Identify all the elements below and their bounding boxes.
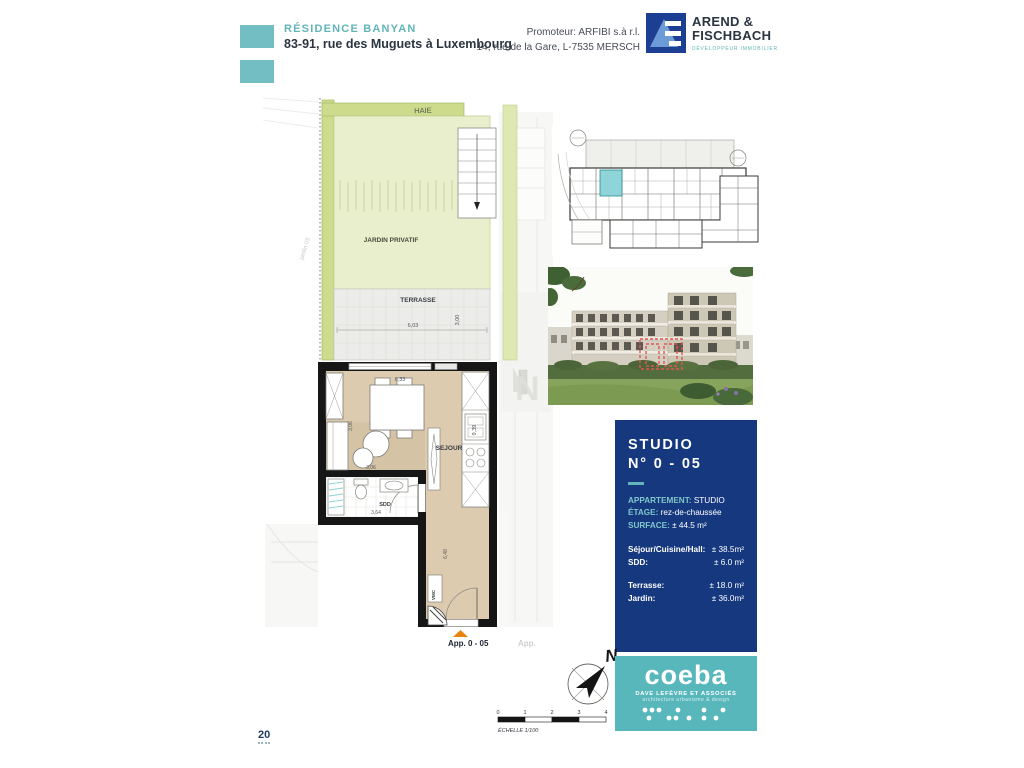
terrasse-height-dim: 3,00 <box>455 315 461 326</box>
coeba-dots-icon <box>631 705 741 723</box>
vmc-label: VMC <box>431 589 436 600</box>
page-number: 20 <box>258 729 270 744</box>
garden-stairs <box>458 128 496 218</box>
promoter-block: Promoteur: ARFIBI s.à r.l. 14, rue de la… <box>440 26 640 55</box>
arend-fischbach-logo-icon <box>646 13 686 53</box>
coeba-wordmark: coeba <box>615 662 757 689</box>
scale-tick: 1 <box>523 710 526 716</box>
arend-fischbach-wordmark: AREND & FISCHBACH DÉVELOPPEUR IMMOBILIER <box>692 15 778 52</box>
promoter-line1: Promoteur: ARFIBI s.à r.l. <box>440 26 640 41</box>
jardin-label: JARDIN PRIVATIF <box>364 237 419 244</box>
washbasin <box>380 479 408 492</box>
building-photo <box>548 267 753 405</box>
unit-info-panel: STUDIO N° 0 - 05 APPARTEMENT: STUDIO ÉTA… <box>615 420 757 652</box>
promoter-line2: 14, rue de la Gare, L-7535 MERSCH <box>440 41 640 56</box>
scale-segments <box>498 717 606 722</box>
wardrobe <box>326 373 343 419</box>
sejour-label: SEJOUR <box>436 445 463 452</box>
logo-name-line2: FISCHBACH <box>692 29 778 43</box>
panel-accent-dash <box>628 482 644 485</box>
sejour-height-dim: 9,39 <box>472 425 478 436</box>
coeba-logo: coeba DAVE LEFÈVRE ET ASSOCIÉS architect… <box>615 656 757 731</box>
key-plan-highlighted-unit <box>600 170 622 196</box>
sdd-label: SDD <box>379 502 391 508</box>
key-plan-drawing <box>558 130 758 248</box>
unit-type-title: STUDIO <box>628 436 744 455</box>
floorplan-drawing: HAIE JARDIN PRIVATIF jardin 05 <box>263 92 555 662</box>
neighbor-ghost-bottom-left <box>263 98 318 627</box>
unit-number-title: N° 0 - 05 <box>628 455 744 474</box>
dining-table <box>370 378 424 438</box>
terrasse-width-dim: 6,03 <box>408 323 419 329</box>
entrance-arrow-icon <box>453 630 468 637</box>
scale-tick: 2 <box>550 710 553 716</box>
toilet <box>354 479 368 499</box>
shower <box>328 479 344 515</box>
surface-row: Jardin:± 36.0m² <box>628 592 744 605</box>
hall-height-dim: 6,48 <box>443 549 449 559</box>
project-name: RÉSIDENCE BANYAN <box>284 23 416 35</box>
surface-row: Terrasse:± 18.0 m² <box>628 579 744 592</box>
surface-row: Séjour/Cuisine/Hall:± 38.5m² <box>628 543 744 556</box>
scale-bar: 0 1 2 3 4 ÉCHELLE 1/100 <box>490 706 618 736</box>
info-row: APPARTEMENT: STUDIO <box>628 495 744 508</box>
terrace-window <box>349 364 457 370</box>
apartment-number-label: App. 0 - 05 <box>448 639 488 648</box>
sofa-bed <box>327 422 348 470</box>
info-row: SURFACE: ± 44.5 m² <box>628 520 744 533</box>
terrasse-label: TERRASSE <box>400 297 436 304</box>
coeba-tagline: architecture urbanisme & design <box>615 697 757 703</box>
scale-tick: 0 <box>496 710 499 716</box>
scale-label: ÉCHELLE 1/100 <box>498 727 539 734</box>
header-teal-square-2 <box>240 60 274 83</box>
kitchen-units <box>462 372 489 507</box>
sejour-width-dim: 6,33 <box>395 377 406 383</box>
garden-side-note: jardin 05 <box>299 236 312 261</box>
logo-name-line1: AREND & <box>692 15 778 29</box>
sdd-width-dim: 3,64 <box>371 510 381 516</box>
terrasse-area: TERRASSE 6,03 3,00 <box>334 289 490 360</box>
haie-label: HAIE <box>414 106 432 116</box>
brochure-page: RÉSIDENCE BANYAN 83-91, rue des Muguets … <box>0 0 1024 768</box>
sejour-depth-dim-left: 3,06 <box>348 421 354 431</box>
surface-row: SDD:± 6.0 m² <box>628 556 744 569</box>
neighbor-apartment-label: App. <box>518 639 536 648</box>
scale-tick: 4 <box>604 710 607 716</box>
watermark-letter: N <box>515 370 540 408</box>
scale-tick: 3 <box>577 710 580 716</box>
sejour-depth-dim: 3,06 <box>366 465 376 471</box>
logo-tagline: DÉVELOPPEUR IMMOBILIER <box>692 47 778 52</box>
radiator <box>428 428 440 490</box>
info-row: ÉTAGE: rez-de-chaussée <box>628 507 744 520</box>
key-plan <box>552 126 760 256</box>
header-teal-square-1 <box>240 25 274 48</box>
compass-icon: N <box>556 646 622 712</box>
